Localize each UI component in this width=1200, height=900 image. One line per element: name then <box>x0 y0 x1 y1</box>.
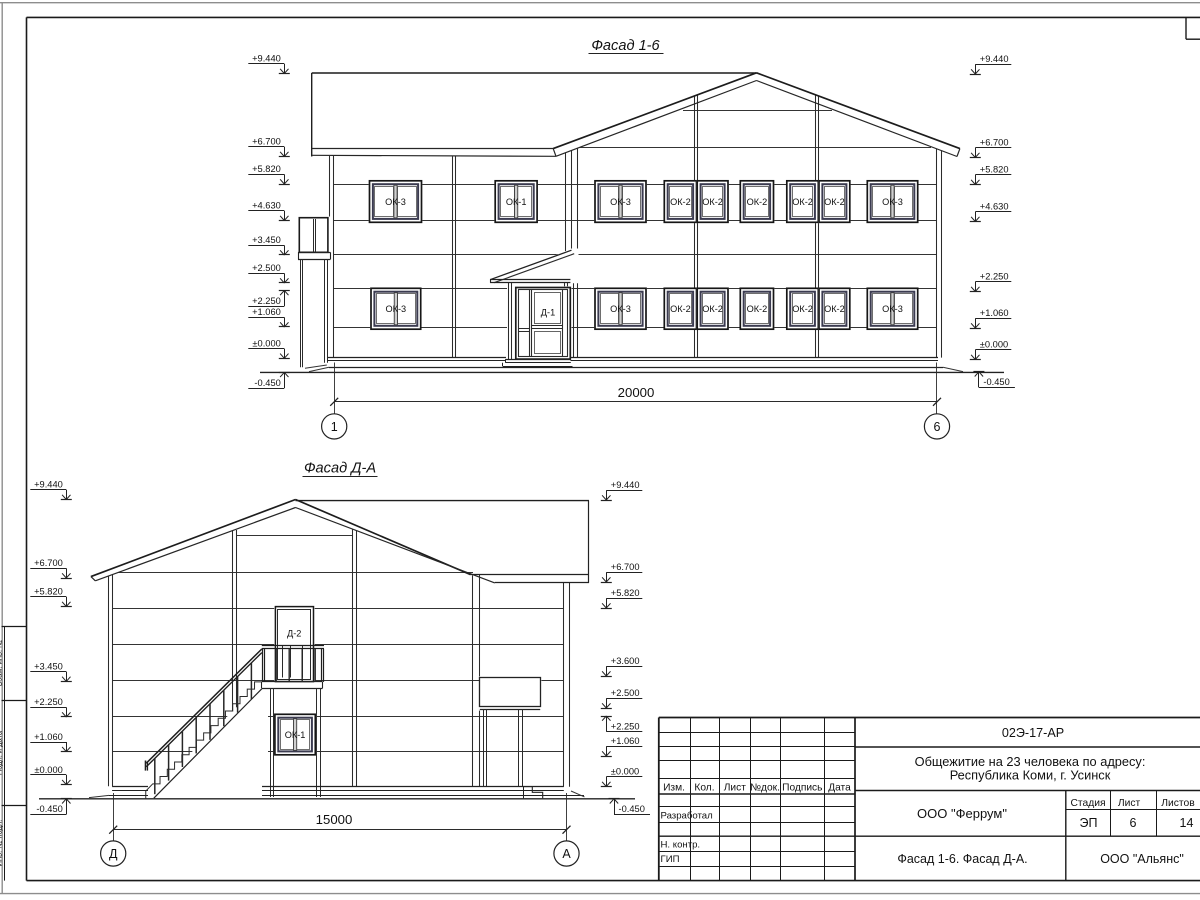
svg-text:+4.630: +4.630 <box>252 201 281 211</box>
svg-text:ОК-3: ОК-3 <box>882 197 903 207</box>
svg-text:+1.060: +1.060 <box>252 307 281 317</box>
svg-text:+2.500: +2.500 <box>252 263 281 273</box>
svg-text:+9.440: +9.440 <box>980 54 1009 64</box>
svg-text:Изм.: Изм. <box>663 782 685 793</box>
svg-text:+3.600: +3.600 <box>611 656 640 666</box>
svg-text:+2.250: +2.250 <box>980 272 1009 282</box>
svg-text:ООО "Феррум": ООО "Феррум" <box>917 806 1007 821</box>
svg-text:Республика Коми, г. Усинск: Республика Коми, г. Усинск <box>950 768 1111 783</box>
svg-text:Стадия: Стадия <box>1070 798 1105 809</box>
svg-text:Лист: Лист <box>1118 798 1141 809</box>
svg-text:Листов: Листов <box>1161 798 1195 809</box>
svg-text:02Э-17-АР: 02Э-17-АР <box>1002 726 1064 740</box>
svg-text:ОК-3: ОК-3 <box>385 197 406 207</box>
svg-text:ОК-2: ОК-2 <box>670 304 691 314</box>
svg-text:+5.820: +5.820 <box>980 165 1009 175</box>
svg-text:Подпись: Подпись <box>782 782 822 793</box>
svg-text:ОК-1: ОК-1 <box>285 730 306 740</box>
svg-text:+9.440: +9.440 <box>611 480 640 490</box>
svg-text:Дата: Дата <box>828 782 851 793</box>
svg-text:А: А <box>562 847 571 861</box>
svg-text:ООО "Альянс": ООО "Альянс" <box>1100 852 1184 866</box>
svg-text:ОК-2: ОК-2 <box>824 304 845 314</box>
svg-text:±0.000: ±0.000 <box>611 767 639 777</box>
svg-text:ОК-2: ОК-2 <box>824 197 845 207</box>
svg-text:6: 6 <box>934 420 941 434</box>
svg-text:+1.060: +1.060 <box>34 732 63 742</box>
svg-text:+4.630: +4.630 <box>980 202 1009 212</box>
svg-text:+9.440: +9.440 <box>252 54 281 64</box>
svg-text:+6.700: +6.700 <box>252 137 281 147</box>
svg-text:Кол.: Кол. <box>694 782 714 793</box>
svg-text:20000: 20000 <box>618 385 655 400</box>
svg-text:1: 1 <box>331 420 338 434</box>
svg-text:ЭП: ЭП <box>1080 816 1098 830</box>
svg-text:-0.450: -0.450 <box>619 804 645 814</box>
svg-text:ОК-3: ОК-3 <box>610 304 631 314</box>
svg-text:+1.060: +1.060 <box>611 736 640 746</box>
svg-text:+2.250: +2.250 <box>252 296 281 306</box>
svg-text:ОК-2: ОК-2 <box>747 197 768 207</box>
svg-text:+5.820: +5.820 <box>611 588 640 598</box>
svg-text:+9.440: +9.440 <box>34 480 63 490</box>
svg-text:6: 6 <box>1130 816 1137 830</box>
svg-text:Взам. инв. №: Взам. инв. № <box>0 640 4 686</box>
svg-text:ОК-2: ОК-2 <box>792 197 813 207</box>
svg-text:+2.500: +2.500 <box>611 688 640 698</box>
svg-text:-0.450: -0.450 <box>983 377 1009 387</box>
svg-text:+1.060: +1.060 <box>980 308 1009 318</box>
svg-text:+6.700: +6.700 <box>611 562 640 572</box>
svg-text:14: 14 <box>1180 816 1194 830</box>
svg-text:ОК-3: ОК-3 <box>610 197 631 207</box>
svg-text:+2.250: +2.250 <box>34 697 63 707</box>
svg-text:Разработал: Разработал <box>661 810 713 821</box>
svg-text:ОК-2: ОК-2 <box>702 304 723 314</box>
svg-text:Подп. и дата: Подп. и дата <box>0 730 4 775</box>
svg-text:ОК-2: ОК-2 <box>792 304 813 314</box>
svg-text:±0.000: ±0.000 <box>34 765 62 775</box>
svg-text:+3.450: +3.450 <box>252 235 281 245</box>
svg-text:-0.450: -0.450 <box>36 804 62 814</box>
svg-text:Д-1: Д-1 <box>541 307 555 317</box>
svg-text:ОК-3: ОК-3 <box>882 304 903 314</box>
svg-text:Фасад 1-6. Фасад Д-А.: Фасад 1-6. Фасад Д-А. <box>897 852 1027 866</box>
svg-text:+5.820: +5.820 <box>34 587 63 597</box>
svg-text:-0.450: -0.450 <box>254 378 280 388</box>
svg-text:+6.700: +6.700 <box>34 558 63 568</box>
svg-text:ОК-2: ОК-2 <box>702 197 723 207</box>
svg-text:+3.450: +3.450 <box>34 662 63 672</box>
svg-text:ГИП: ГИП <box>661 854 680 865</box>
svg-text:Фасад Д-А: Фасад Д-А <box>304 461 376 477</box>
svg-text:№док.: №док. <box>750 782 780 793</box>
svg-text:ОК-2: ОК-2 <box>747 304 768 314</box>
svg-text:+2.250: +2.250 <box>611 721 640 731</box>
svg-text:Д-2: Д-2 <box>287 629 301 639</box>
svg-text:±0.000: ±0.000 <box>252 339 280 349</box>
svg-text:Инв. № подл.: Инв. № подл. <box>0 820 4 867</box>
svg-text:±0.000: ±0.000 <box>980 340 1008 350</box>
svg-text:ОК-2: ОК-2 <box>670 197 691 207</box>
svg-text:Д: Д <box>109 847 118 861</box>
svg-text:Н. контр.: Н. контр. <box>661 839 701 850</box>
svg-text:15000: 15000 <box>316 812 353 827</box>
svg-text:Фасад 1-6: Фасад 1-6 <box>591 38 660 54</box>
svg-text:ОК-1: ОК-1 <box>506 197 527 207</box>
svg-text:+6.700: +6.700 <box>980 138 1009 148</box>
svg-text:ОК-3: ОК-3 <box>386 304 407 314</box>
svg-text:Лист: Лист <box>724 782 746 793</box>
svg-text:+5.820: +5.820 <box>252 164 281 174</box>
